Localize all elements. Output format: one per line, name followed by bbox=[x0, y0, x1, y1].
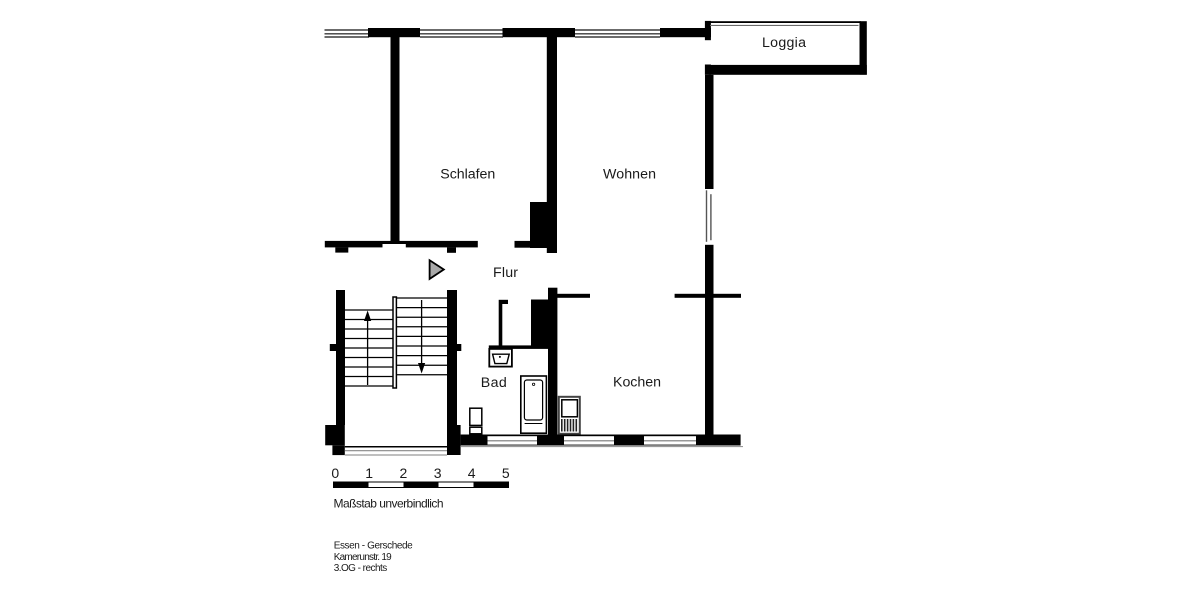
svg-text:Essen - Gerschede: Essen - Gerschede bbox=[334, 541, 413, 552]
svg-text:5: 5 bbox=[502, 465, 510, 481]
svg-text:4: 4 bbox=[468, 465, 476, 481]
svg-text:Flur: Flur bbox=[493, 265, 518, 281]
svg-text:1: 1 bbox=[365, 465, 373, 481]
svg-text:Schlafen: Schlafen bbox=[440, 167, 495, 183]
svg-text:3.OG - rechts: 3.OG - rechts bbox=[334, 563, 388, 574]
svg-text:2: 2 bbox=[400, 465, 408, 481]
svg-text:0: 0 bbox=[331, 465, 339, 481]
svg-text:Kochen: Kochen bbox=[613, 375, 661, 391]
svg-text:3: 3 bbox=[434, 465, 442, 481]
svg-text:Kamerunstr. 19: Kamerunstr. 19 bbox=[334, 552, 392, 563]
svg-text:Bad: Bad bbox=[481, 375, 507, 391]
svg-text:Wohnen: Wohnen bbox=[603, 167, 656, 183]
svg-text:Loggia: Loggia bbox=[762, 35, 806, 51]
svg-text:Maßstab unverbindlich: Maßstab unverbindlich bbox=[334, 497, 444, 511]
